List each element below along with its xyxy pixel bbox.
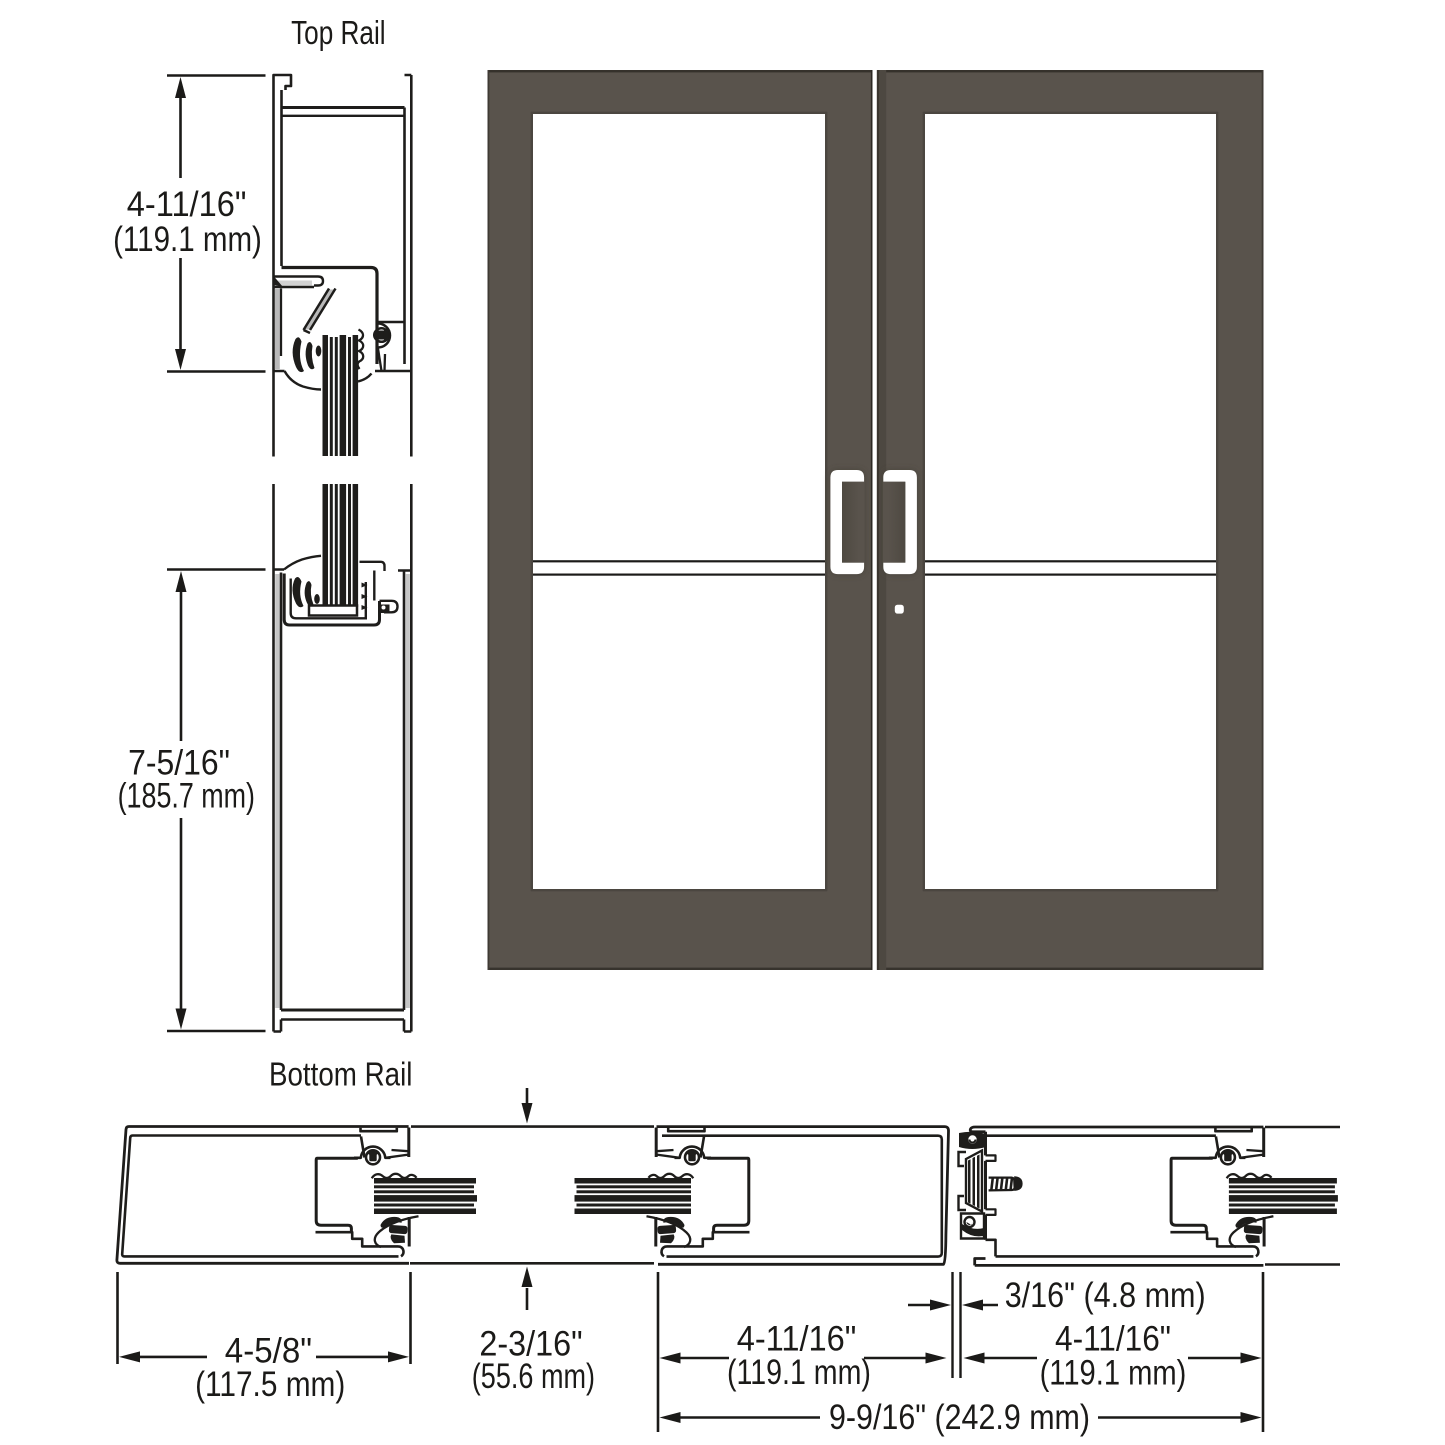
svg-text:(119.1 mm): (119.1 mm)	[727, 1353, 871, 1392]
svg-text:(117.5 mm): (117.5 mm)	[195, 1365, 345, 1404]
svg-text:Bottom Rail: Bottom Rail	[269, 1055, 412, 1092]
svg-text:Top Rail: Top Rail	[291, 14, 386, 51]
svg-text:(119.1 mm): (119.1 mm)	[113, 220, 262, 259]
svg-text:(119.1 mm): (119.1 mm)	[1040, 1354, 1187, 1393]
svg-text:3/16" (4.8 mm): 3/16" (4.8 mm)	[1005, 1276, 1206, 1315]
svg-text:4-11/16": 4-11/16"	[127, 185, 247, 224]
svg-text:(185.7 mm): (185.7 mm)	[118, 777, 255, 816]
svg-text:(55.6 mm): (55.6 mm)	[472, 1357, 595, 1396]
svg-text:9-9/16" (242.9 mm): 9-9/16" (242.9 mm)	[829, 1398, 1090, 1437]
